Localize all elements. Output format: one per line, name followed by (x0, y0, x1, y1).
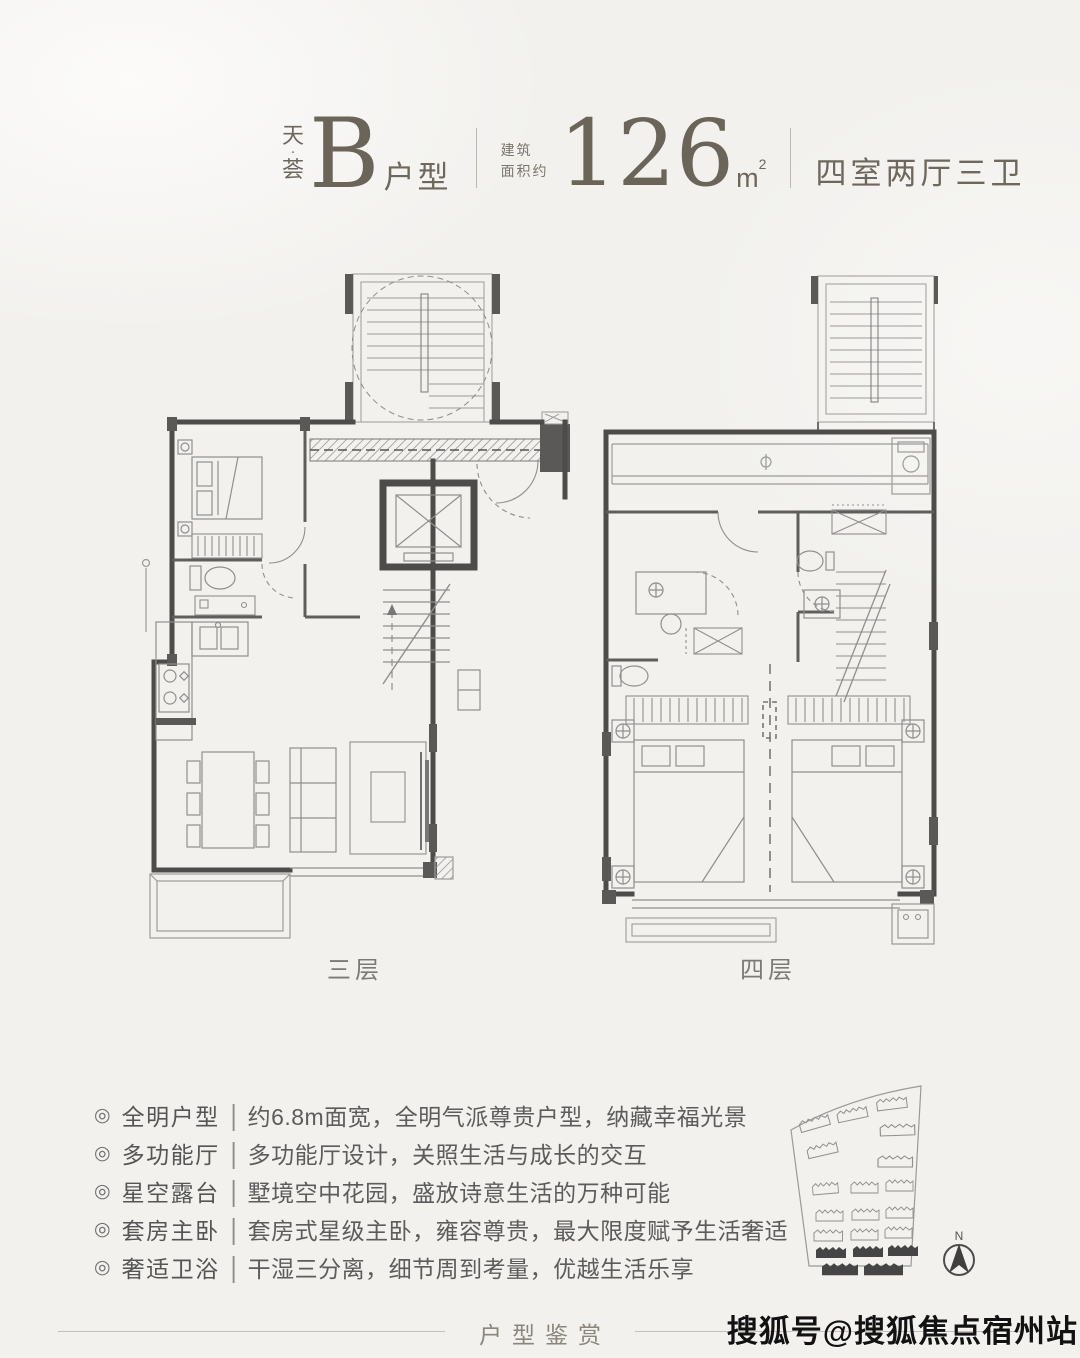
bed-icon (178, 440, 262, 536)
partition-dashed (763, 664, 776, 892)
feature-separator: | (231, 1174, 237, 1208)
header: 天 · 荟 B 户型 建筑 面积约 126 m2 四室两厅三卫 (282, 110, 1025, 197)
wardrobe-icon (626, 696, 910, 724)
walls-outline (154, 422, 565, 870)
bed-icon-2 (792, 720, 924, 888)
tv-icon (421, 752, 429, 850)
site-plan: N (778, 1068, 990, 1300)
balcony-icon (150, 874, 290, 938)
feature-tag: 多功能厅 (122, 1136, 220, 1170)
unit-letter: B (309, 112, 380, 196)
window-band-bottom (632, 900, 900, 908)
desk-icon (636, 572, 706, 634)
dining-table-icon (187, 752, 269, 848)
terrace-icon (612, 438, 930, 494)
plan-label-4f: 四层 (598, 950, 938, 985)
footer-text: 户型鉴赏 MARINE CITY (445, 1316, 636, 1358)
feature-separator: | (231, 1212, 237, 1246)
bullet-icon: ◎ (94, 1104, 111, 1127)
compass-icon: N (944, 1229, 974, 1275)
rug-coffee-table-icon (350, 742, 426, 854)
bed-icon (612, 720, 744, 888)
sink-icon (804, 590, 840, 618)
toilet-icon-2 (797, 551, 834, 571)
watermark-text: 搜狐号@搜狐焦点宿州站 (727, 1306, 1078, 1351)
footer-line-left (58, 1331, 445, 1332)
feature-separator: | (231, 1136, 237, 1170)
flyer-page: 天 · 荟 B 户型 建筑 面积约 126 m2 四室两厅三卫 (0, 0, 1080, 1358)
plan-label-3f: 三层 (140, 950, 570, 985)
feature-desc: 多功能厅设计，关照生活与成长的交互 (248, 1136, 648, 1170)
footer-title: 户型鉴赏 (463, 1316, 618, 1350)
internal-stair-icon (832, 505, 890, 702)
brand-name: 天 · 荟 (282, 124, 304, 181)
feature-item: ◎ 奢适卫浴 | 干湿三分离，细节周到考量，优越生活乐享 (94, 1248, 788, 1286)
washer-icon (195, 596, 255, 615)
feature-item: ◎ 全明户型 | 约6.8m面宽，全明气派尊贵户型，纳藏幸福光景 (94, 1096, 788, 1134)
shoe-cabinet-icon (686, 628, 742, 654)
feature-tag: 全明户型 (122, 1098, 220, 1132)
stairwell-icon (345, 274, 500, 422)
sofa-icon (290, 748, 336, 852)
area-value: 126 (559, 114, 735, 195)
feature-list: ◎ 全明户型 | 约6.8m面宽，全明气派尊贵户型，纳藏幸福光景 ◎ 多功能厅 … (94, 1096, 788, 1286)
floor-plan-3f-drawing (140, 272, 570, 944)
feature-tag: 奢适卫浴 (122, 1250, 220, 1284)
site-buildings-highlighted (816, 1245, 918, 1275)
feature-desc: 约6.8m面宽，全明气派尊贵户型，纳藏幸福光景 (248, 1098, 748, 1132)
floor-plan-4f-drawing (598, 272, 938, 952)
area-caption: 建筑 面积约 (501, 140, 549, 182)
feature-tag: 套房主卧 (122, 1212, 220, 1246)
balcony-stub-icon (626, 918, 776, 942)
washer-icon (892, 904, 934, 944)
compass-label: N (955, 1229, 964, 1243)
feature-item: ◎ 多功能厅 | 多功能厅设计，关照生活与成长的交互 (94, 1134, 788, 1172)
feature-desc: 墅境空中花园，盛放诗意生活的万种可能 (248, 1174, 671, 1208)
toilet-icon (190, 566, 235, 590)
stairwell-icon (811, 276, 938, 432)
unit-suffix: 户型 (384, 152, 452, 197)
site-boundary (791, 1086, 921, 1266)
feature-desc: 干湿三分离，细节周到考量，优越生活乐享 (248, 1250, 695, 1284)
feature-item: ◎ 套房主卧 | 套房式星级主卧，雍容尊贵，最大限度赋予生活奢适 (94, 1210, 788, 1248)
area-unit-sup: 2 (759, 156, 767, 172)
area-unit-m: m (736, 163, 759, 193)
brand-bottom: 荟 (282, 158, 304, 181)
header-divider-2 (790, 128, 791, 188)
bullet-icon: ◎ (94, 1142, 111, 1165)
feature-item: ◎ 星空露台 | 墅境空中花园，盛放诗意生活的万种可能 (94, 1172, 788, 1210)
feature-desc: 套房式星级主卧，雍容尊贵，最大限度赋予生活奢适 (248, 1212, 789, 1246)
window-band-bottom (290, 857, 453, 879)
header-divider-1 (476, 128, 477, 188)
elevator-icon (383, 483, 474, 567)
bullet-icon: ◎ (94, 1218, 111, 1241)
drain-pipe-icon (143, 560, 150, 633)
wardrobe-icon (192, 534, 262, 558)
feature-tag: 星空露台 (122, 1174, 220, 1208)
site-buildings-outline (799, 1096, 915, 1241)
layout-description: 四室两厅三卫 (815, 148, 1025, 193)
feature-separator: | (231, 1098, 237, 1132)
feature-separator: | (231, 1250, 237, 1284)
area-caption-line1: 建筑 (501, 140, 549, 161)
toilet-icon (612, 666, 648, 686)
area-caption-line2: 面积约 (501, 161, 549, 182)
area-unit: m2 (736, 156, 766, 194)
site-plan-drawing: N (778, 1068, 990, 1300)
bullet-icon: ◎ (94, 1256, 111, 1279)
bullet-icon: ◎ (94, 1180, 111, 1203)
